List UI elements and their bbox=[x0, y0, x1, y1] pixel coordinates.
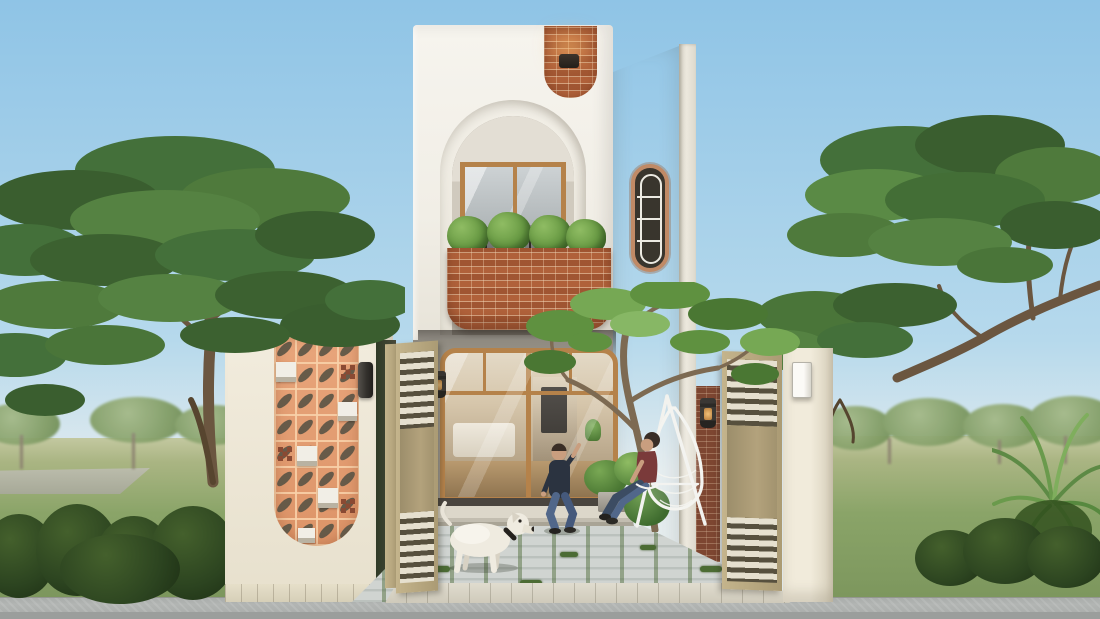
frangipani-foliage bbox=[524, 282, 800, 385]
chimney-lamp bbox=[559, 54, 579, 68]
swing-chair-and-woman bbox=[596, 388, 720, 536]
right-shrubs bbox=[915, 512, 1100, 592]
right-tree-foliage bbox=[755, 115, 1100, 370]
dog-tail bbox=[442, 503, 450, 524]
left-tree bbox=[0, 120, 405, 490]
architectural-render-scene bbox=[0, 0, 1100, 619]
woman-figure bbox=[599, 432, 660, 524]
capsule-window bbox=[631, 164, 669, 272]
child-figure bbox=[532, 438, 592, 536]
hedge-row bbox=[0, 500, 236, 602]
dog-eye bbox=[518, 519, 521, 522]
left-tree-foliage bbox=[0, 136, 405, 416]
dog-figure bbox=[434, 498, 534, 574]
road-edge bbox=[0, 612, 1100, 619]
balcony-shrub bbox=[487, 212, 531, 252]
